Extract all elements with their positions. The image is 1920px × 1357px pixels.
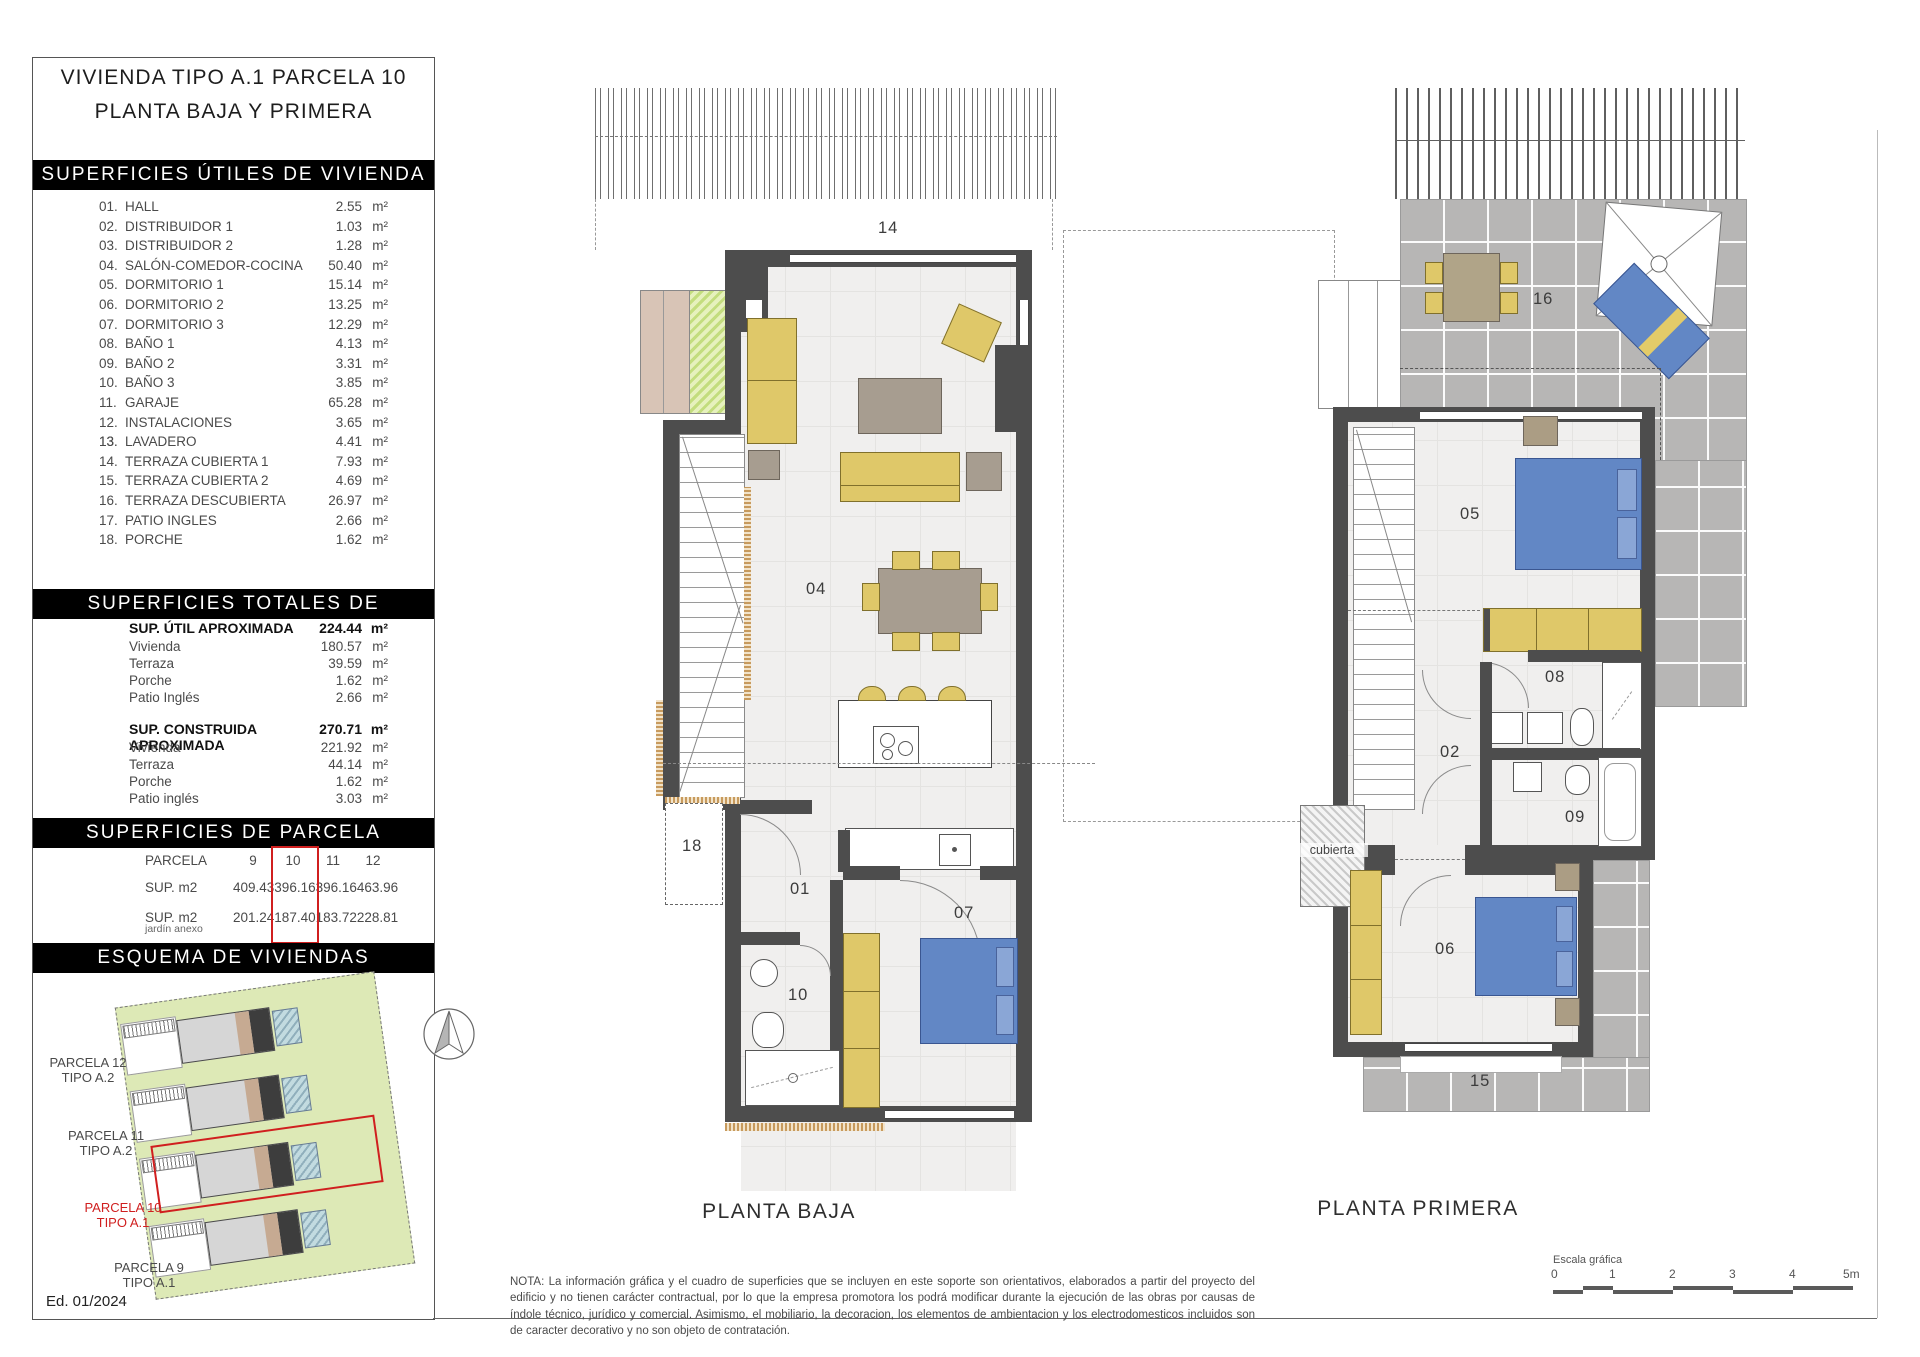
pillow — [1617, 517, 1637, 559]
scale-tick: 3 — [1729, 1267, 1736, 1281]
row-label: LAVADERO — [125, 434, 316, 449]
room-label-10: 10 — [788, 986, 808, 1005]
terrace-table — [1443, 253, 1500, 322]
lounger-towel — [1638, 308, 1687, 357]
row-unit: m² — [362, 375, 388, 390]
total-val: 44.14 — [316, 757, 362, 772]
closet-seam — [1536, 609, 1537, 651]
total-row: Porche1.62m² — [33, 774, 434, 791]
surface-list: 01.HALL2.55m² 02.DISTRIBUIDOR 11.03m² 03… — [33, 199, 434, 552]
sink-08a — [1487, 712, 1523, 744]
parcel-table: PARCELA 9 10 11 12 SUP. m2 409.43 396.16… — [33, 853, 434, 935]
row-num: 10. — [99, 375, 125, 390]
house-block — [204, 1209, 303, 1266]
window-bottom — [885, 1110, 1014, 1119]
window-sill — [1400, 1056, 1562, 1073]
section-header-superficies-parcela: SUPERFICIES DE PARCELA — [33, 818, 434, 848]
parcel-name: PARCELA 11 — [68, 1128, 144, 1143]
row-num: 12. — [99, 415, 125, 430]
row-unit: m² — [362, 493, 388, 508]
sofa-seam — [748, 380, 796, 381]
bed-05 — [1515, 458, 1642, 570]
room-label-01: 01 — [790, 880, 810, 899]
planter-seam — [1348, 281, 1349, 408]
coffee-table — [858, 378, 942, 434]
sofa-vertical — [747, 318, 797, 444]
total-row: Patio Inglés2.66m² — [33, 690, 434, 707]
total-row: Terraza44.14m² — [33, 757, 434, 774]
total-unit: m² — [362, 740, 388, 755]
surface-row: 13.13.LAVADERO4.41m² — [33, 434, 434, 454]
stairs-primera — [1353, 427, 1415, 810]
row-value: 50.40 — [316, 258, 362, 273]
row-value: 2.55 — [316, 199, 362, 214]
burner — [898, 741, 913, 756]
parcel-id: 11 — [313, 853, 353, 868]
nightstand-05 — [1523, 416, 1558, 446]
row-num: 06. — [99, 297, 125, 312]
row-value: 3.85 — [316, 375, 362, 390]
row-value: 15.14 — [316, 277, 362, 292]
surface-row: 03.DISTRIBUIDOR 21.28m² — [33, 238, 434, 258]
row-value: 3.31 — [316, 356, 362, 371]
nightstand-06b — [1555, 998, 1580, 1026]
totals-list: SUP. ÚTIL APROXIMADA224.44m² Vivienda180… — [33, 620, 434, 808]
room-label-16: 16 — [1533, 290, 1553, 309]
scale-seg — [1793, 1286, 1853, 1290]
total-label: Terraza — [129, 757, 316, 772]
section-header-superficies-totales: SUPERFICIES TOTALES DE VIVIENDA — [33, 589, 434, 619]
chair — [1500, 292, 1518, 314]
pergola-beam — [595, 136, 1057, 137]
scale-seg — [1613, 1290, 1673, 1294]
stair-cut-line — [1356, 430, 1412, 623]
row-num: 09. — [99, 356, 125, 371]
scale-title: Escala gráfica — [1553, 1254, 1855, 1266]
site-label-parcela-9: PARCELA 9TIPO A.1 — [107, 1260, 191, 1290]
cooktop — [873, 726, 919, 764]
row-label: DORMITORIO 2 — [125, 297, 316, 312]
toilet-09 — [1565, 765, 1590, 795]
total-label: Vivienda — [129, 639, 316, 654]
frame-right-line — [1877, 130, 1878, 1318]
sink-09 — [1513, 762, 1542, 792]
total-label: Vivienda — [129, 740, 316, 755]
side-terrace-block — [640, 290, 727, 414]
planter-seam — [1377, 281, 1378, 408]
total-label: Porche — [129, 774, 316, 789]
scale-seg — [1583, 1286, 1613, 1290]
pillow — [1617, 469, 1637, 511]
row-num: 05. — [99, 277, 125, 292]
scale-seg — [1673, 1286, 1733, 1290]
wall-bedroom-top-a — [843, 866, 900, 880]
parcel-sup-row: SUP. m2 409.43 396.16 396.16 463.96 — [33, 880, 434, 910]
room-label-05: 05 — [1460, 505, 1480, 524]
total-val: 1.62 — [316, 673, 362, 688]
wall-bedroom-top-b — [980, 866, 1016, 880]
overhang-line — [1400, 368, 1660, 369]
green-planter — [690, 291, 725, 413]
wall-02-baths — [1480, 662, 1492, 845]
row-num: 18. — [99, 532, 125, 547]
stairs-baja — [679, 434, 745, 798]
closet-dash-line — [1348, 610, 1480, 611]
total-unit: m² — [362, 791, 388, 806]
chair — [892, 551, 920, 570]
closet-05 — [1483, 608, 1642, 652]
row-num: 03. — [99, 238, 125, 253]
surface-row: 11.GARAJE65.28m² — [33, 395, 434, 415]
wall-hall — [741, 800, 812, 814]
pool — [281, 1075, 312, 1114]
shelf — [844, 991, 879, 992]
total-unit: m² — [362, 639, 388, 654]
insulation-strip — [744, 487, 751, 700]
kitchen-island — [838, 700, 992, 768]
row-unit: m² — [362, 297, 388, 312]
cubierta-label: cubierta — [1296, 843, 1368, 857]
parcel-type: TIPO A.1 — [97, 1215, 150, 1230]
row-unit: m² — [362, 434, 388, 449]
plan-planta-primera: 16 15 05 — [1060, 85, 1890, 1235]
house-block — [186, 1075, 285, 1132]
parcel-jardin: 201.24 — [233, 910, 274, 925]
room-label-04: 04 — [806, 580, 826, 599]
terrace-guide-left — [595, 199, 596, 250]
pergola-terraza-16 — [1395, 88, 1745, 199]
deck-seam — [663, 291, 664, 413]
house-block — [176, 1007, 275, 1064]
total-row: Porche1.62m² — [33, 673, 434, 690]
toilet-08 — [1570, 708, 1594, 746]
row-value: 1.62 — [316, 532, 362, 547]
bed-06 — [1475, 897, 1577, 996]
row-num: 11. — [99, 395, 125, 410]
bathtub-09 — [1598, 757, 1642, 847]
total-row: Vivienda180.57m² — [33, 639, 434, 656]
wall-left-lower — [725, 810, 741, 1122]
sink-08b — [1527, 712, 1563, 744]
parcel-name: PARCELA 12 — [49, 1055, 126, 1070]
pillow — [996, 995, 1014, 1035]
window-bottom-06 — [1405, 1043, 1552, 1052]
site-label-parcela-10: PARCELA 10TIPO A.1 — [81, 1200, 165, 1230]
row-label: BAÑO 1 — [125, 336, 316, 351]
row-unit: m² — [362, 356, 388, 371]
plan-planta-baja: 14 — [540, 85, 1070, 1235]
shelf — [844, 1048, 879, 1049]
wardrobe-07 — [843, 933, 880, 1108]
parcel-sup: 396.16 — [316, 880, 357, 895]
site-scheme: PARCELA 12TIPO A.2 PARCELA 11TIPO A.2 PA… — [33, 976, 434, 1291]
sheet-title-line1: VIVIENDA TIPO A.1 PARCELA 10 — [33, 66, 434, 90]
row-num: 15. — [99, 473, 125, 488]
row-unit: m² — [362, 317, 388, 332]
burner — [880, 733, 895, 748]
row-unit: m² — [362, 532, 388, 547]
row-value: 4.69 — [316, 473, 362, 488]
insulation-strip — [656, 700, 663, 796]
surface-row: 15.TERRAZA CUBIERTA 24.69m² — [33, 473, 434, 493]
row-num: 08. — [99, 336, 125, 351]
chair — [1500, 262, 1518, 284]
chair — [932, 551, 960, 570]
graphic-scale: Escala gráfica 0 1 2 3 4 5m — [1553, 1254, 1855, 1266]
sofa-seam — [841, 485, 959, 486]
overhang-line-v — [1660, 368, 1661, 460]
scale-bar — [1553, 1286, 1853, 1294]
chair — [1425, 262, 1443, 284]
pillow — [1556, 906, 1573, 942]
surface-row: 14.TERRAZA CUBIERTA 17.93m² — [33, 454, 434, 474]
shelf — [1351, 925, 1381, 926]
row-value: 3.65 — [316, 415, 362, 430]
total-title-row: SUP. CONSTRUIDA APROXIMADA270.71m² — [33, 721, 434, 740]
surface-row: 01.HALL2.55m² — [33, 199, 434, 219]
shower — [745, 1050, 840, 1106]
row-label: PORCHE — [125, 532, 316, 547]
scale-tick: 2 — [1669, 1267, 1676, 1281]
row-label: DORMITORIO 1 — [125, 277, 316, 292]
total-val: 2.66 — [316, 690, 362, 705]
pool — [300, 1209, 331, 1248]
tub-inner — [1604, 763, 1636, 841]
row-value: 12.29 — [316, 317, 362, 332]
total-val: 221.92 — [316, 740, 362, 755]
planter-box — [1318, 280, 1407, 409]
parcel-name: PARCELA 9 — [114, 1260, 184, 1275]
parcel-type: TIPO A.1 — [123, 1275, 176, 1290]
total-label: Terraza — [129, 656, 316, 671]
row-unit: m² — [362, 199, 388, 214]
insulation-strip — [725, 1123, 885, 1131]
row-value: 1.28 — [316, 238, 362, 253]
terrace-guide-right — [1052, 199, 1053, 250]
row-label: BAÑO 3 — [125, 375, 316, 390]
wall-08-top — [1528, 650, 1640, 662]
edition-stamp: Ed. 01/2024 — [46, 1293, 127, 1310]
row-value: 2.66 — [316, 513, 362, 528]
total-label: Porche — [129, 673, 316, 688]
row-unit: m² — [362, 395, 388, 410]
surface-row: 17.PATIO INGLES2.66m² — [33, 513, 434, 533]
row-label: DISTRIBUIDOR 1 — [125, 219, 316, 234]
scale-tick: 1 — [1609, 1267, 1616, 1281]
pillow — [996, 947, 1014, 987]
row-value: 65.28 — [316, 395, 362, 410]
total-val: 39.59 — [316, 656, 362, 671]
wall-right — [1016, 250, 1032, 1122]
section-line — [663, 763, 1095, 764]
window-top — [790, 254, 1016, 263]
room-label-06: 06 — [1435, 940, 1455, 959]
row-num: 04. — [99, 258, 125, 273]
bed-07 — [920, 938, 1018, 1044]
site-label-parcela-11: PARCELA 11TIPO A.2 — [64, 1128, 148, 1158]
wall-stairbay-left — [663, 420, 679, 810]
parcel-jardin: 228.81 — [357, 910, 398, 925]
parcel-sup: 409.43 — [233, 880, 274, 895]
parcel-id: 12 — [353, 853, 393, 868]
surface-row: 07.DORMITORIO 312.29m² — [33, 317, 434, 337]
parcel-sup: 463.96 — [357, 880, 398, 895]
legal-note: NOTA: La información gráfica y el cuadro… — [510, 1274, 1255, 1339]
site-label-parcela-12: PARCELA 12TIPO A.2 — [46, 1055, 130, 1085]
burner — [882, 749, 893, 760]
surface-row: 12.INSTALACIONES3.65m² — [33, 415, 434, 435]
scale-tick: 4 — [1789, 1267, 1796, 1281]
door-gap-line — [1395, 859, 1465, 860]
parcel-name: PARCELA 10 — [84, 1200, 161, 1215]
surface-row: 09.BAÑO 23.31m² — [33, 356, 434, 376]
section-header-esquema: ESQUEMA DE VIVIENDAS — [33, 943, 434, 973]
row-num: 14. — [99, 454, 125, 469]
scale-seg — [1553, 1290, 1583, 1294]
scale-seg — [1733, 1290, 1793, 1294]
row-unit: m² — [362, 258, 388, 273]
pergola-terraza-14 — [595, 88, 1057, 199]
ottoman — [748, 450, 780, 480]
parcel-id: 9 — [233, 853, 273, 868]
door-gap-06 — [1395, 845, 1465, 875]
row-value: 1.03 — [316, 219, 362, 234]
row-unit: m² — [362, 513, 388, 528]
pillow — [1556, 951, 1573, 987]
total-unit: m² — [362, 620, 388, 636]
plan-sheet: VIVIENDA TIPO A.1 PARCELA 10 PLANTA BAJA… — [0, 0, 1920, 1357]
drain — [952, 847, 957, 852]
chair — [1425, 292, 1443, 314]
room-label-15: 15 — [1470, 1072, 1490, 1091]
section-header-superficies-utiles: SUPERFICIES ÚTILES DE VIVIENDA — [33, 160, 434, 190]
surface-row: 16.TERRAZA DESCUBIERTA26.97m² — [33, 493, 434, 513]
shower-08 — [1602, 662, 1642, 750]
sheet-title-line2: PLANTA BAJA Y PRIMERA — [33, 100, 434, 124]
row-value: 26.97 — [316, 493, 362, 508]
row-value: 4.13 — [316, 336, 362, 351]
room-label-02: 02 — [1440, 743, 1460, 762]
parcel-jardin: 183.72 — [316, 910, 357, 925]
room-label-07: 07 — [954, 904, 974, 923]
parcel-col-label: PARCELA — [145, 853, 233, 868]
highlight-parcela-10-box — [271, 846, 319, 944]
row-label: PATIO INGLES — [125, 513, 316, 528]
chair — [980, 583, 998, 611]
row-label: INSTALACIONES — [125, 415, 316, 430]
stair-cut-line — [682, 437, 744, 624]
kitchen-counter — [845, 828, 1014, 870]
parcel-type: TIPO A.2 — [62, 1070, 115, 1085]
shelf — [1351, 979, 1381, 980]
total-unit: m² — [362, 774, 388, 789]
row-unit: m² — [362, 473, 388, 488]
room-label-18: 18 — [682, 837, 702, 856]
surface-row: 06.DORMITORIO 213.25m² — [33, 297, 434, 317]
surface-row: 08.BAÑO 14.13m² — [33, 336, 434, 356]
parcel-type: TIPO A.2 — [80, 1143, 133, 1158]
surface-row: 18.PORCHE1.62m² — [33, 532, 434, 552]
room-label-14: 14 — [878, 219, 898, 238]
row-label: BAÑO 2 — [125, 356, 316, 371]
surface-row: 05.DORMITORIO 115.14m² — [33, 277, 434, 297]
pergola-beam — [1395, 140, 1745, 141]
row-unit: m² — [362, 336, 388, 351]
row-label: SALÓN-COMEDOR-COCINA — [125, 258, 316, 273]
room-label-08: 08 — [1545, 668, 1565, 687]
row-label: DORMITORIO 3 — [125, 317, 316, 332]
kitchen-sink — [939, 834, 971, 866]
row-value: 13.25 — [316, 297, 362, 312]
window-right — [1019, 300, 1029, 345]
row-unit: m² — [362, 415, 388, 430]
plan-title-baja: PLANTA BAJA — [639, 1200, 919, 1224]
total-label: Patio inglés — [129, 791, 316, 806]
toilet — [752, 1012, 784, 1048]
row-label: GARAJE — [125, 395, 316, 410]
chair — [932, 632, 960, 651]
row-num: 13. — [99, 434, 125, 449]
row-num: 01. — [99, 199, 125, 214]
row-label: TERRAZA DESCUBIERTA — [125, 493, 316, 508]
lower-floor-outline — [1063, 230, 1335, 822]
scale-tick: 0 — [1551, 1267, 1558, 1281]
surface-row: 10.BAÑO 33.85m² — [33, 375, 434, 395]
chair — [892, 632, 920, 651]
total-unit: m² — [362, 721, 388, 737]
total-val: 180.57 — [316, 639, 362, 654]
nightstand-06a — [1555, 863, 1580, 891]
chair — [862, 583, 880, 611]
beige-deck — [641, 291, 690, 413]
pool — [272, 1007, 303, 1046]
total-value: 270.71 — [316, 721, 362, 737]
total-unit: m² — [362, 690, 388, 705]
parcel-row-label: SUP. m2 — [145, 880, 233, 895]
total-row: Vivienda221.92m² — [33, 740, 434, 757]
row-num: 07. — [99, 317, 125, 332]
total-label: Patio Inglés — [129, 690, 316, 705]
sofa-horizontal — [840, 452, 960, 502]
washbasin — [750, 959, 778, 987]
total-val: 3.03 — [316, 791, 362, 806]
surface-row: 04.SALÓN-COMEDOR-COCINA50.40m² — [33, 258, 434, 278]
row-label: HALL — [125, 199, 316, 214]
closet-cap — [1484, 609, 1490, 651]
closet-seam — [1588, 609, 1589, 651]
wall-left-upper — [725, 250, 741, 434]
shower-drain — [788, 1073, 798, 1083]
info-panel: VIVIENDA TIPO A.1 PARCELA 10 PLANTA BAJA… — [32, 57, 435, 1320]
plan-title-primera: PLANTA PRIMERA — [1278, 1197, 1558, 1221]
row-value: 4.41 — [316, 434, 362, 449]
total-unit: m² — [362, 757, 388, 772]
terrace-side-strip — [1593, 860, 1650, 1059]
shower-line — [1612, 691, 1632, 719]
row-num: 16. — [99, 493, 125, 508]
surface-row: 02.DISTRIBUIDOR 11.03m² — [33, 219, 434, 239]
total-title-row: SUP. ÚTIL APROXIMADA224.44m² — [33, 620, 434, 639]
row-unit: m² — [362, 454, 388, 469]
row-label: TERRAZA CUBIERTA 2 — [125, 473, 316, 488]
total-row: Terraza39.59m² — [33, 656, 434, 673]
total-unit: m² — [362, 673, 388, 688]
parcel-header-row: PARCELA 9 10 11 12 — [33, 853, 434, 880]
wall-hall-bath — [741, 932, 800, 945]
scale-tick: 5m — [1843, 1267, 1860, 1281]
total-row: Patio inglés3.03m² — [33, 791, 434, 808]
room-label-09: 09 — [1565, 808, 1585, 827]
